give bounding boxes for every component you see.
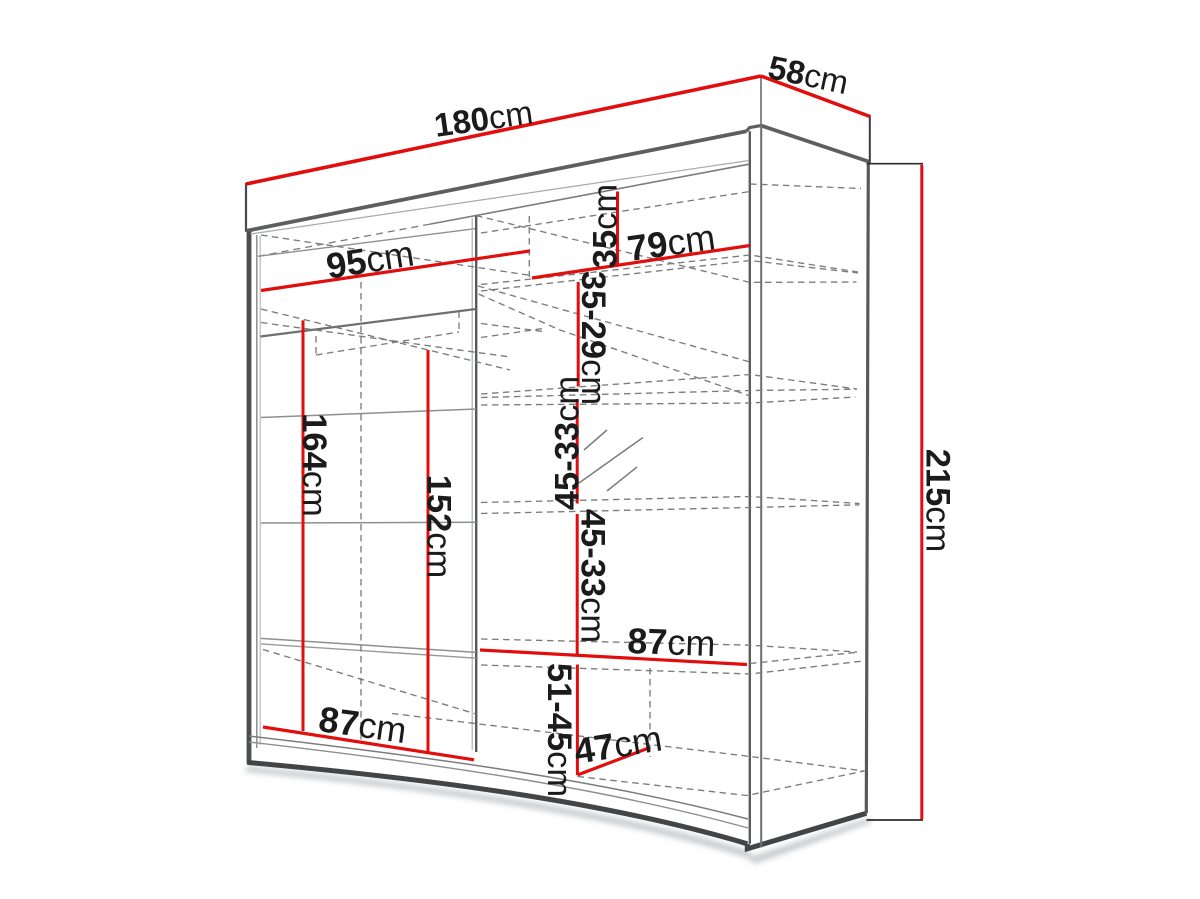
svg-text:47cm: 47cm [571, 718, 664, 772]
svg-text:87cm: 87cm [627, 620, 716, 664]
svg-text:215cm: 215cm [919, 449, 957, 553]
svg-text:95cm: 95cm [323, 233, 416, 287]
svg-text:35cm: 35cm [587, 184, 625, 268]
svg-text:164cm: 164cm [295, 413, 333, 517]
svg-text:79cm: 79cm [625, 216, 718, 269]
svg-text:87cm: 87cm [316, 698, 409, 751]
svg-text:45-33cm: 45-33cm [549, 376, 587, 510]
svg-text:51-45cm: 51-45cm [540, 663, 578, 797]
svg-text:45-33cm: 45-33cm [574, 509, 612, 643]
svg-text:152cm: 152cm [420, 475, 458, 579]
